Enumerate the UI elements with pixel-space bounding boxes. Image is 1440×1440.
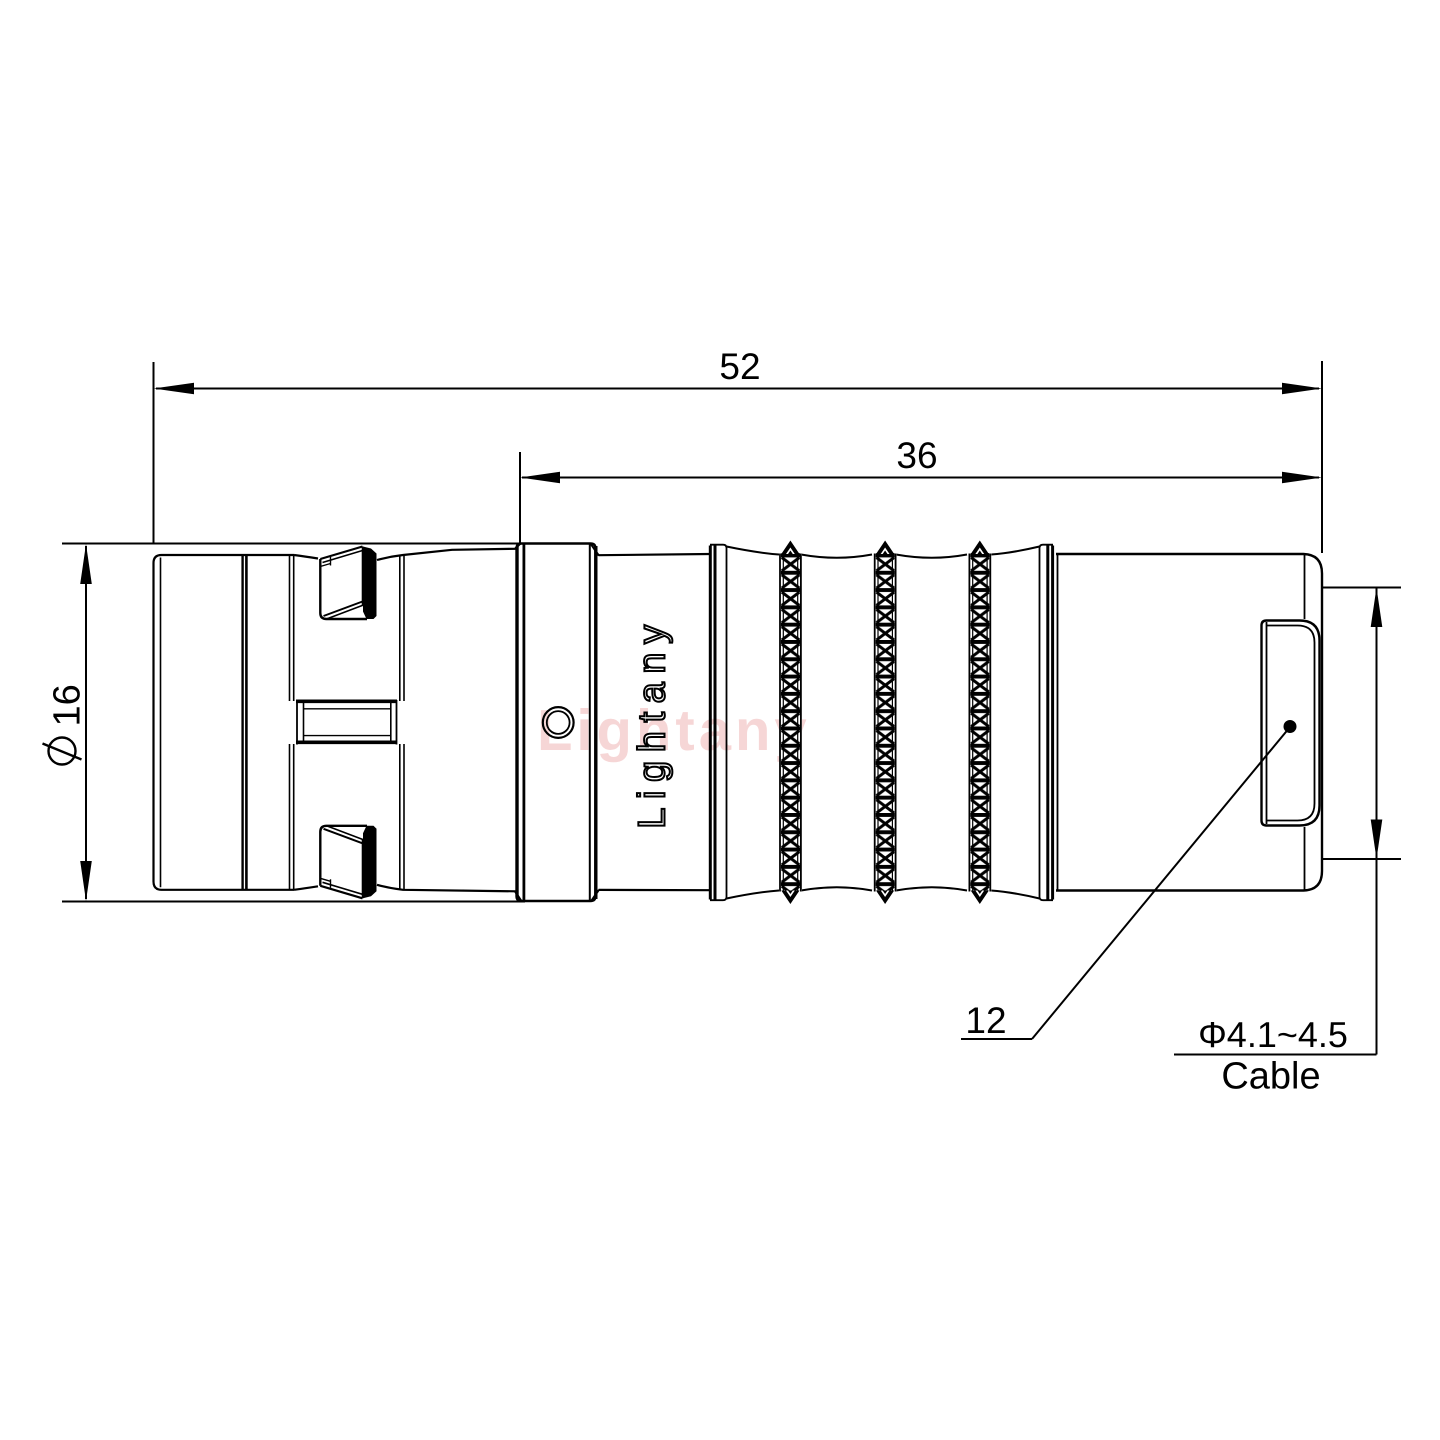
svg-text:Lightany: Lightany [632, 616, 674, 828]
svg-text:Lightany: Lightany [537, 698, 811, 763]
svg-text:52: 52 [719, 346, 760, 387]
svg-text:16: 16 [47, 684, 89, 726]
svg-text:36: 36 [896, 435, 937, 476]
svg-text:12: 12 [965, 1000, 1006, 1041]
svg-text:Φ4.1~4.5: Φ4.1~4.5 [1198, 1014, 1348, 1055]
svg-text:Cable: Cable [1221, 1056, 1320, 1098]
